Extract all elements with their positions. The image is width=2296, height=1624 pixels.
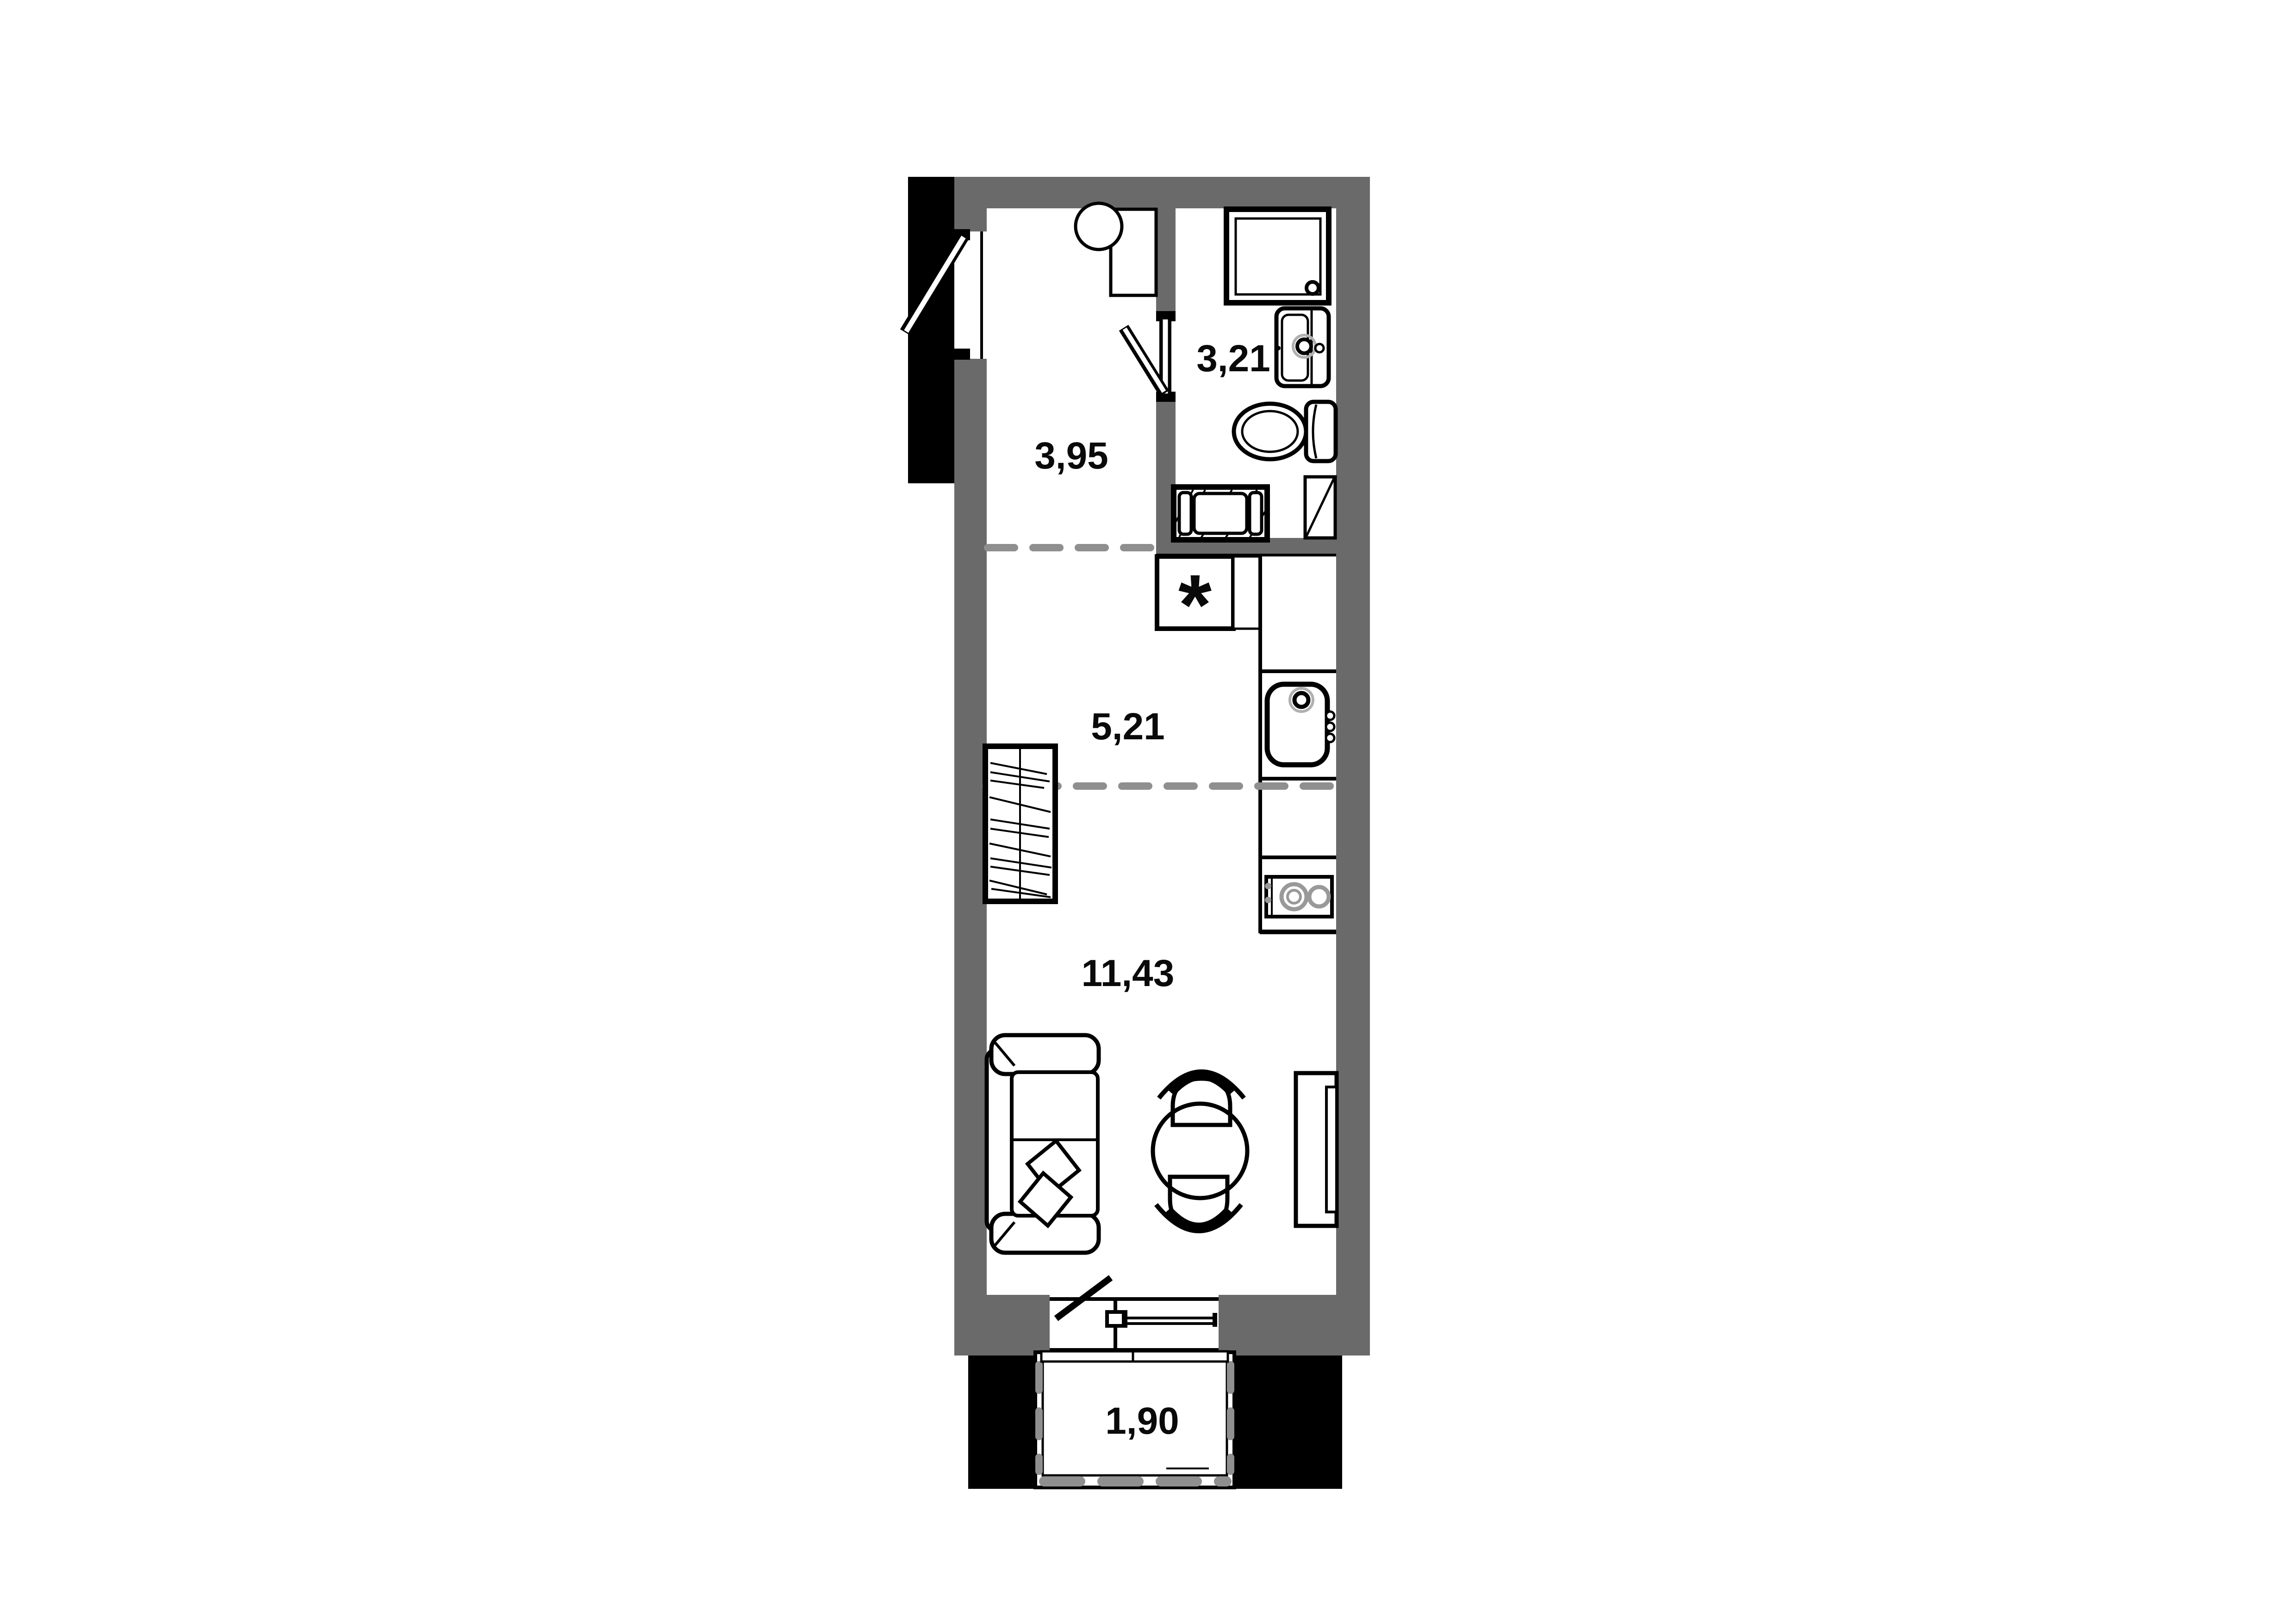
window-glazing-line-2 — [1126, 1322, 1213, 1325]
sofa-icon — [987, 1035, 1099, 1253]
kitchen-sink-dot-3 — [1326, 734, 1334, 742]
dining-set — [1153, 1072, 1247, 1231]
exterior-mass-balcony-left — [968, 1355, 1035, 1489]
bathroom-door-open-leaf-fill — [1125, 329, 1164, 392]
counter-bottom-edge — [1260, 930, 1336, 934]
wall-right — [1336, 208, 1370, 1295]
kitchen-narrow-cabinet — [1233, 556, 1260, 629]
shower-drain — [1307, 282, 1319, 294]
room-label-kitchen: 5,21 — [1091, 706, 1165, 748]
washer-left-bar — [1179, 493, 1191, 534]
dining-table-icon — [1153, 1104, 1247, 1198]
balcony-sill-left — [1041, 1351, 1133, 1362]
kitchen-sink-dot-1 — [1326, 712, 1334, 720]
kitchen-sink-faucet — [1294, 693, 1308, 707]
wall-left-upper-stub — [954, 208, 987, 231]
assembly-top-line — [1050, 1297, 1219, 1301]
exterior-mass-balcony-right — [1234, 1355, 1342, 1489]
washer-right-bar — [1250, 493, 1262, 534]
hallway-fixtures — [1076, 203, 1156, 295]
exterior-mass-top-left — [908, 177, 954, 483]
window-cap-right — [1213, 1313, 1217, 1327]
washer-drum — [1194, 493, 1247, 533]
room-label-balcony: 1,90 — [1105, 1400, 1179, 1442]
shower-icon — [1226, 209, 1329, 303]
boiler-icon — [1076, 203, 1122, 250]
window-glazing-line-1 — [1126, 1317, 1213, 1319]
room-label-bathroom: 3,21 — [1196, 337, 1270, 380]
entrance-door-hinge-bottom — [954, 349, 970, 360]
window-cap-left — [1122, 1313, 1126, 1327]
bathroom-sink-icon — [1276, 308, 1329, 386]
wall-bathroom-divider-upper — [1156, 208, 1176, 315]
wardrobe-icon — [985, 746, 1055, 901]
stove-knob-1 — [1265, 883, 1271, 889]
vent-shaft-icon — [1305, 477, 1335, 538]
entrance-door-closed-line — [980, 231, 983, 359]
room-label-living: 11,43 — [1082, 952, 1175, 994]
counter-divider-2 — [1260, 777, 1336, 781]
fridge-marker: * — [1178, 557, 1212, 653]
counter-divider-1 — [1260, 669, 1336, 673]
bath-sink-side-dot — [1315, 344, 1324, 352]
balcony-sill-right — [1133, 1351, 1228, 1362]
sofa-back — [987, 1050, 1014, 1230]
counter-left-edge — [1258, 556, 1262, 933]
wall-bottom-left-segment — [954, 1295, 1050, 1355]
bathroom-door-icon — [1124, 311, 1176, 402]
bath-sink-faucet — [1297, 339, 1311, 353]
sofa-armrest-top — [991, 1035, 1099, 1074]
stove-knob-2 — [1265, 897, 1271, 903]
bath-sink-left-dot — [1276, 346, 1281, 350]
toilet-tank — [1306, 402, 1336, 461]
stove-icon — [1265, 877, 1332, 917]
tv-panel — [1326, 1087, 1337, 1212]
wall-top — [954, 177, 1370, 208]
tv-stand-icon — [1296, 1073, 1337, 1226]
counter-divider-3 — [1260, 856, 1336, 859]
kitchen-sink-dot-2 — [1326, 723, 1334, 731]
floor-plan: * — [0, 0, 2296, 1624]
washing-machine-icon — [1174, 487, 1267, 540]
balcony-window-assembly — [1050, 1278, 1219, 1351]
wall-bottom-right-segment — [1219, 1295, 1370, 1355]
toilet-icon — [1234, 402, 1336, 461]
kitchen-sink-icon — [1267, 684, 1334, 765]
room-label-hallway: 3,95 — [1034, 435, 1108, 477]
wall-left-main — [954, 359, 987, 1295]
